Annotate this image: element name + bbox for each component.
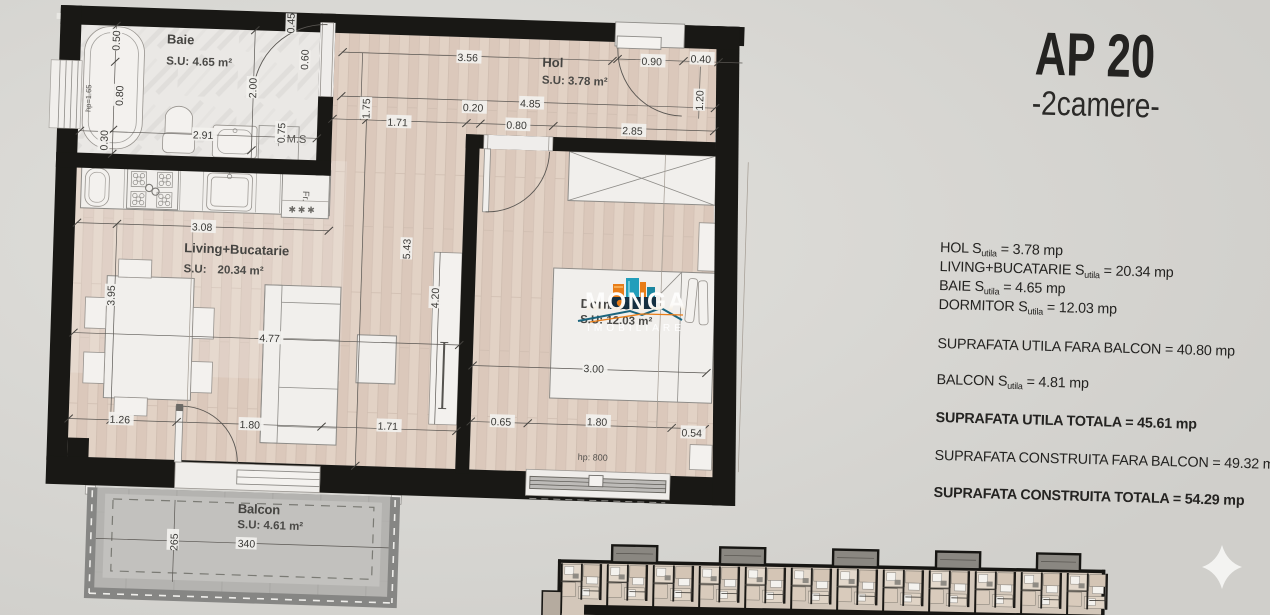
svg-text:3.00: 3.00 xyxy=(583,363,604,376)
svg-text:AP 20: AP 20 xyxy=(1034,19,1156,90)
svg-text:0.65: 0.65 xyxy=(491,416,512,429)
svg-text:4.77: 4.77 xyxy=(259,333,280,346)
svg-text:1.71: 1.71 xyxy=(377,420,398,433)
svg-text:1.26: 1.26 xyxy=(109,414,130,427)
svg-text:2.00: 2.00 xyxy=(247,77,260,98)
svg-text:3.56: 3.56 xyxy=(457,52,478,65)
svg-text:2.91: 2.91 xyxy=(193,129,214,142)
svg-text:hp=1.65: hp=1.65 xyxy=(84,84,94,112)
svg-text:0.90: 0.90 xyxy=(641,56,662,69)
svg-text:5.43: 5.43 xyxy=(401,239,414,260)
svg-text:1.75: 1.75 xyxy=(360,98,373,119)
svg-text:0.50: 0.50 xyxy=(111,30,124,51)
svg-text:S.U:: S.U: xyxy=(183,263,206,276)
svg-text:0.40: 0.40 xyxy=(690,53,711,66)
svg-text:Baie: Baie xyxy=(167,31,195,47)
svg-text:0.80: 0.80 xyxy=(506,119,527,132)
svg-text:3.95: 3.95 xyxy=(105,285,118,306)
svg-text:✱ ✱ ✱: ✱ ✱ ✱ xyxy=(288,204,315,215)
svg-text:1.80: 1.80 xyxy=(587,416,608,429)
svg-text:3.08: 3.08 xyxy=(192,221,213,234)
svg-text:-2camere-: -2camere- xyxy=(1031,84,1160,125)
svg-text:1.20: 1.20 xyxy=(694,90,707,111)
svg-text:20.34 m²: 20.34 m² xyxy=(217,264,264,277)
svg-text:0.30: 0.30 xyxy=(98,130,111,151)
svg-text:0.54: 0.54 xyxy=(681,427,702,440)
svg-text:4.20: 4.20 xyxy=(429,287,442,308)
svg-text:2.85: 2.85 xyxy=(622,125,643,138)
svg-text:Fr.: Fr. xyxy=(301,191,311,202)
svg-text:hp: 800: hp: 800 xyxy=(578,452,608,463)
svg-text:IMOBILIARE: IMOBILIARE xyxy=(587,323,685,334)
svg-text:0.20: 0.20 xyxy=(463,102,484,115)
svg-text:Balcon: Balcon xyxy=(238,501,281,517)
svg-text:MONGA: MONGA xyxy=(585,288,687,316)
svg-text:M.S: M.S xyxy=(287,133,307,146)
svg-text:4.85: 4.85 xyxy=(520,98,541,111)
svg-text:Hol: Hol xyxy=(542,55,563,71)
svg-text:340: 340 xyxy=(237,538,255,551)
svg-text:S.U: 3.78 m²: S.U: 3.78 m² xyxy=(542,75,608,89)
svg-text:0.60: 0.60 xyxy=(299,49,312,70)
svg-text:1.80: 1.80 xyxy=(239,419,260,432)
svg-text:S.U: 4.65 m²: S.U: 4.65 m² xyxy=(166,55,232,69)
svg-text:265: 265 xyxy=(168,533,181,551)
svg-text:0.80: 0.80 xyxy=(114,85,127,106)
svg-text:0.45: 0.45 xyxy=(285,13,298,34)
svg-text:1.71: 1.71 xyxy=(387,117,408,130)
svg-text:S.U: 4.61 m²: S.U: 4.61 m² xyxy=(237,519,303,533)
